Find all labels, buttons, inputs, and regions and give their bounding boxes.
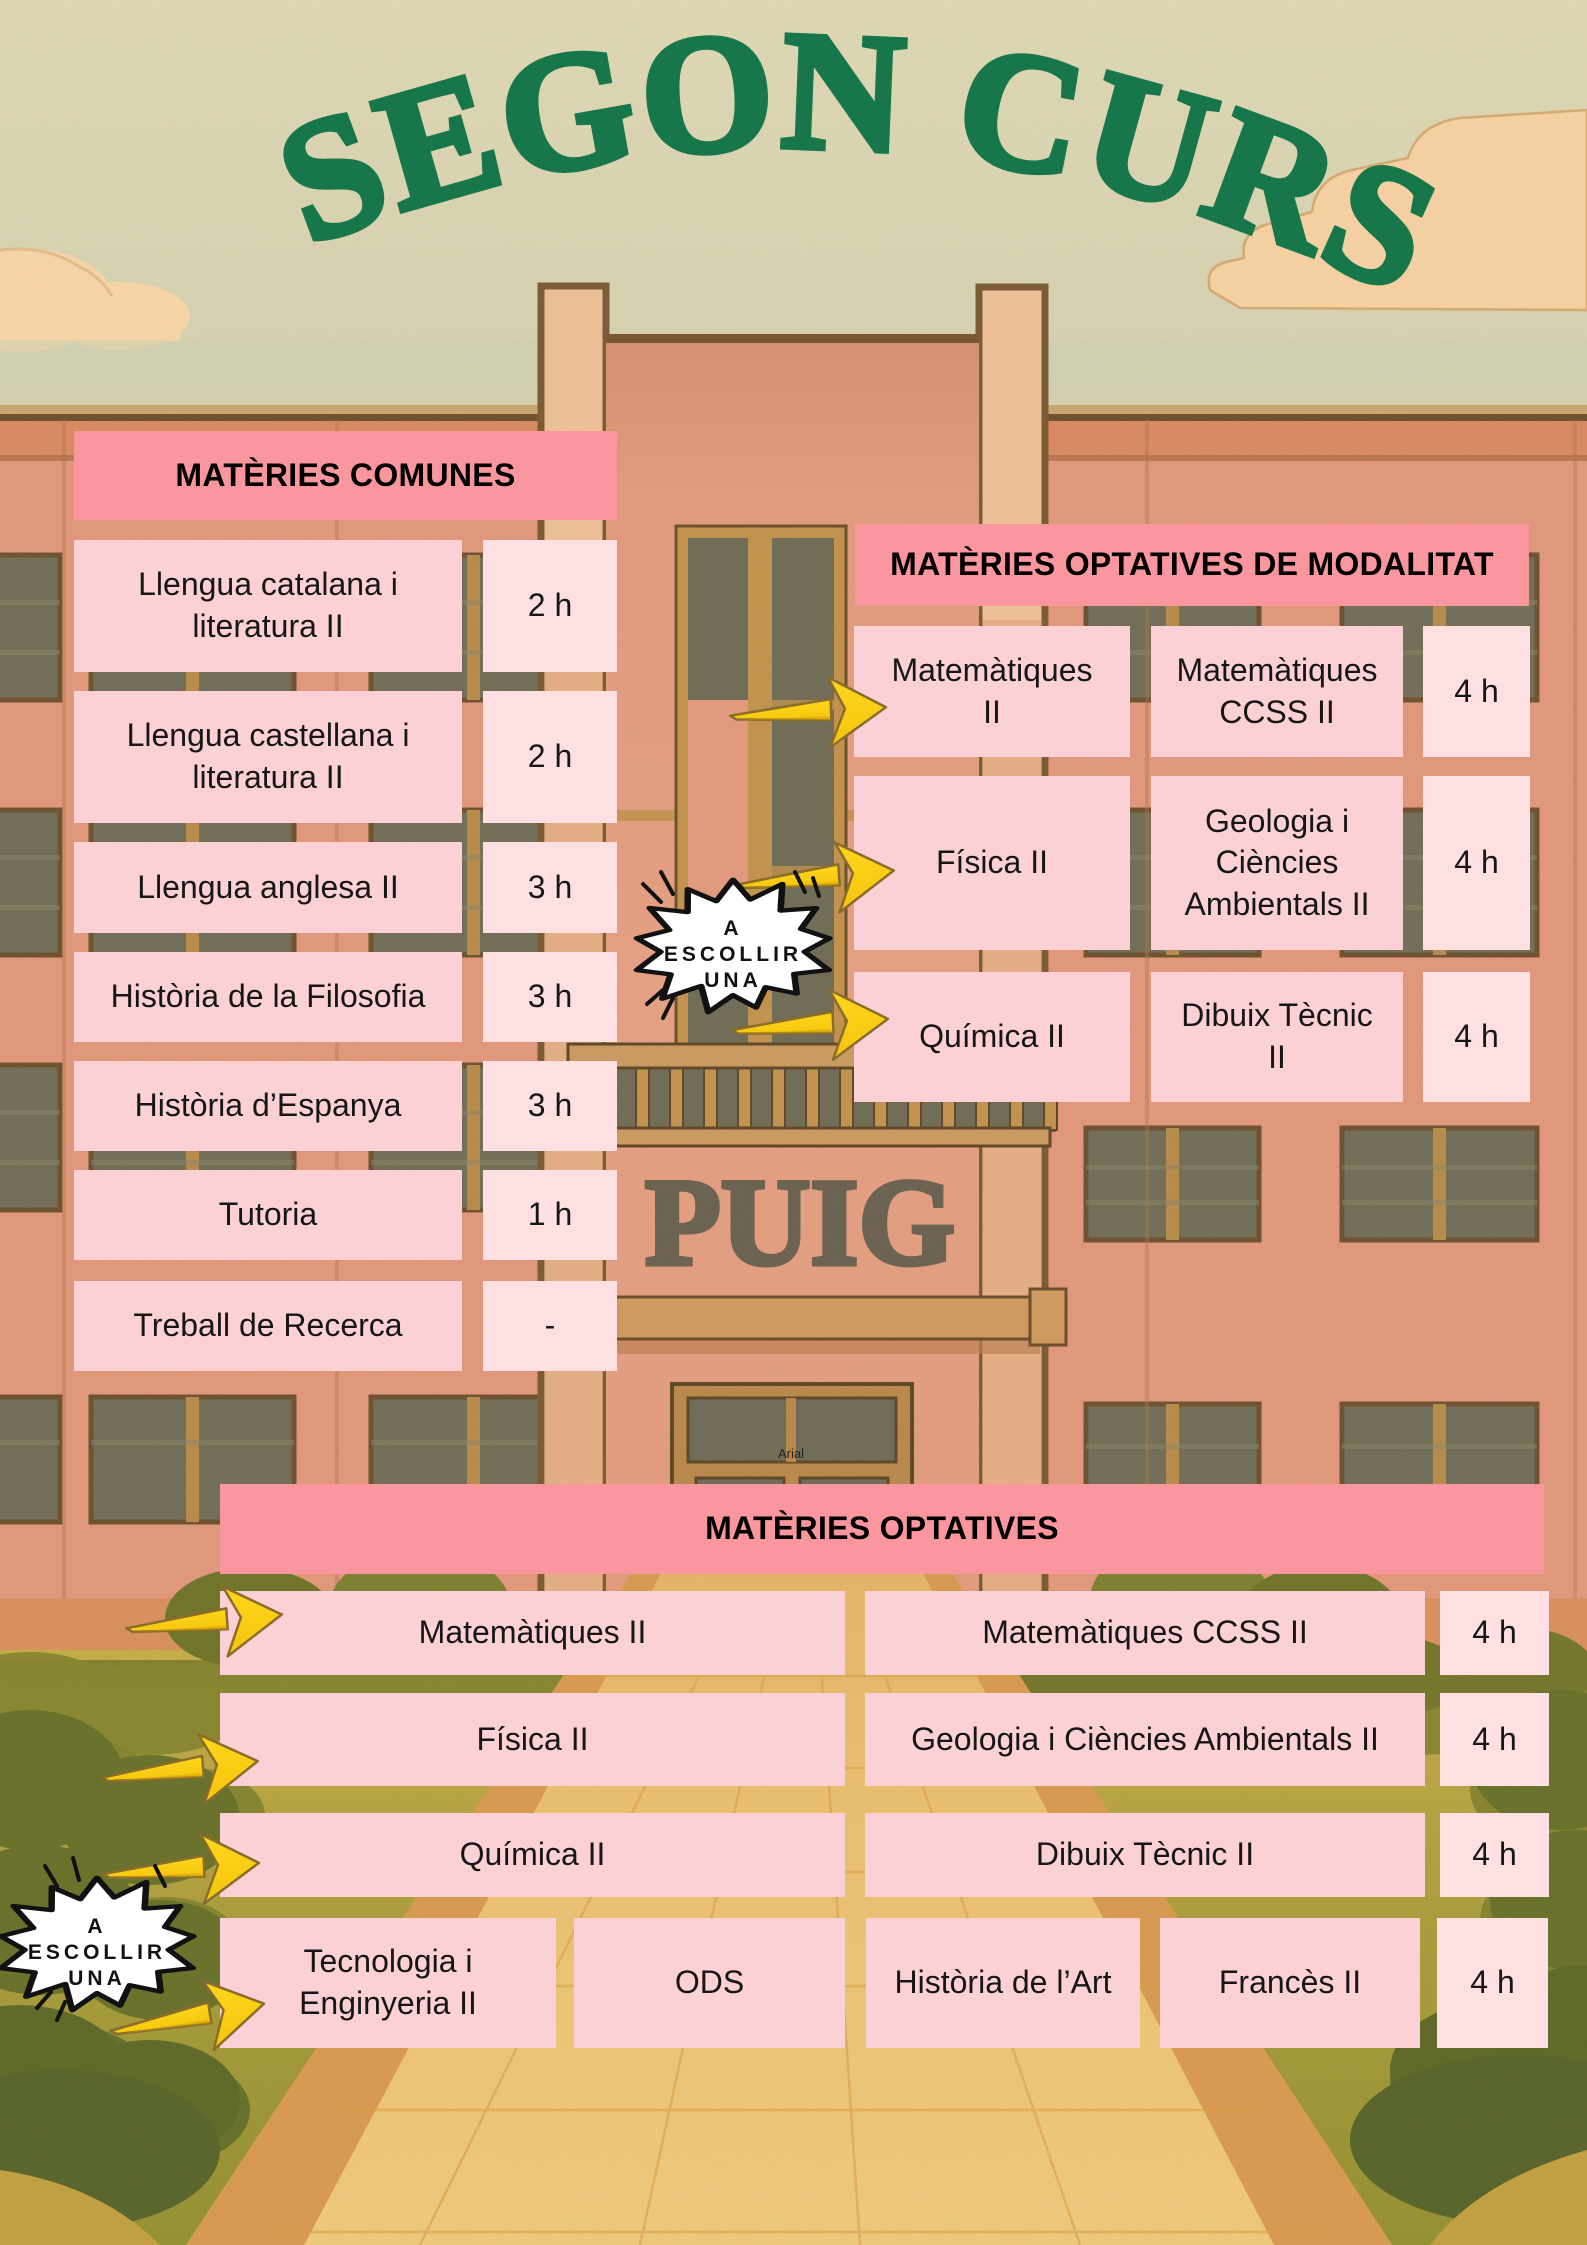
svg-text:A: A <box>723 917 742 940</box>
svg-text:A: A <box>87 1915 106 1938</box>
svg-text:ESCOLLIR: ESCOLLIR <box>28 1941 166 1964</box>
svg-text:ESCOLLIR: ESCOLLIR <box>664 943 802 966</box>
svg-text:UNA: UNA <box>704 969 762 992</box>
svg-text:UNA: UNA <box>68 1967 126 1990</box>
